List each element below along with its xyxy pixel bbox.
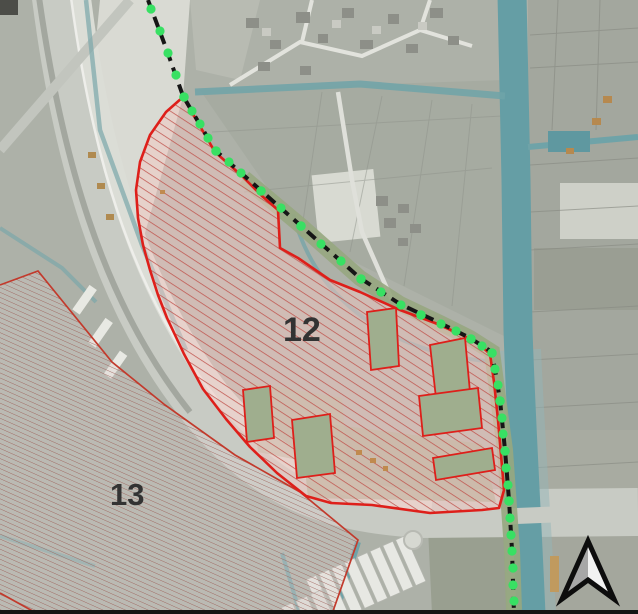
zone-13-label: 13: [110, 477, 144, 512]
frame-edge: [0, 610, 638, 614]
map-viewport[interactable]: 12 13: [0, 0, 638, 614]
zone-12-label: 12: [283, 311, 321, 349]
map-canvas: 12 13: [0, 0, 638, 614]
roundabout: [404, 531, 422, 549]
